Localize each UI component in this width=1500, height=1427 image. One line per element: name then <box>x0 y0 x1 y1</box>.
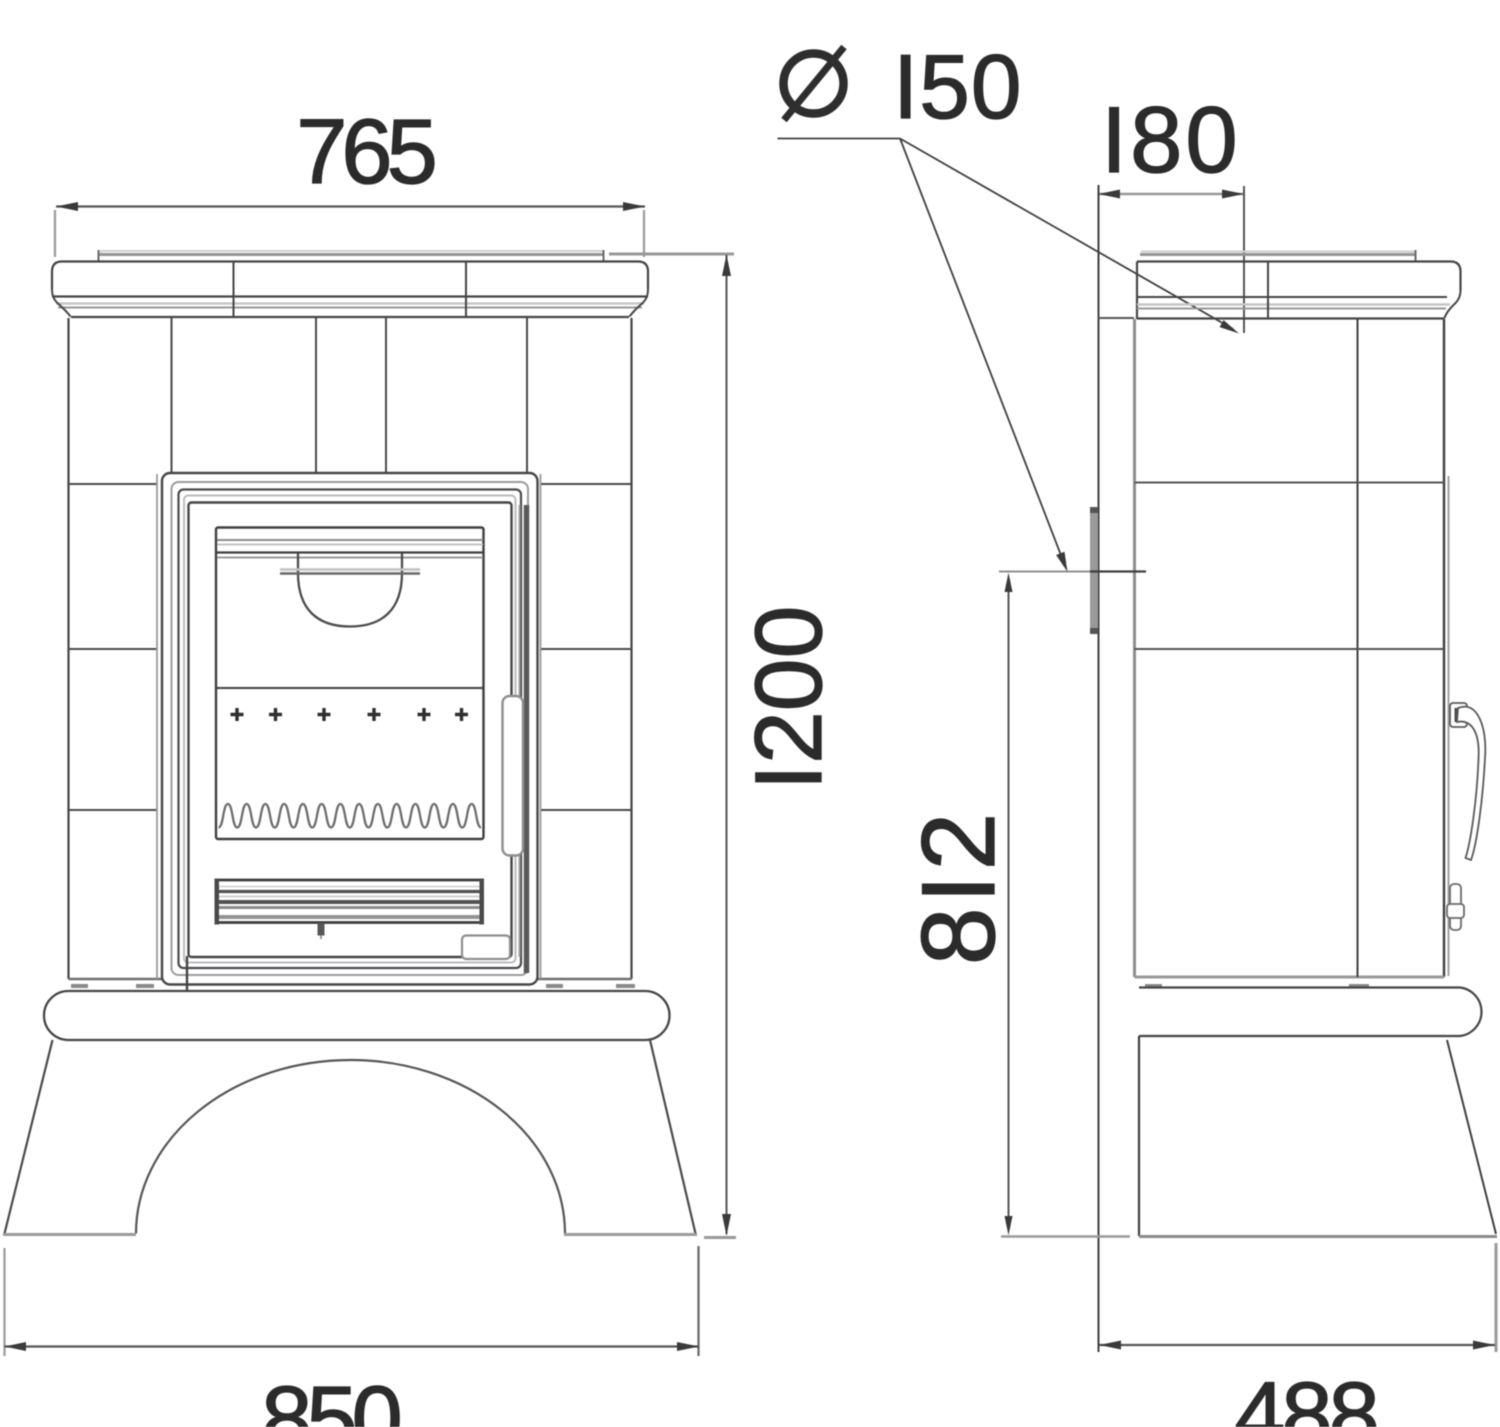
svg-text:I50: I50 <box>893 37 1023 138</box>
svg-text:I200: I200 <box>736 606 842 791</box>
svg-text:8I2: 8I2 <box>901 809 1017 966</box>
svg-text:850: 850 <box>261 1368 399 1427</box>
svg-text:I80: I80 <box>1101 87 1241 192</box>
svg-text:765: 765 <box>296 101 434 203</box>
svg-text:488: 488 <box>1234 1364 1376 1427</box>
